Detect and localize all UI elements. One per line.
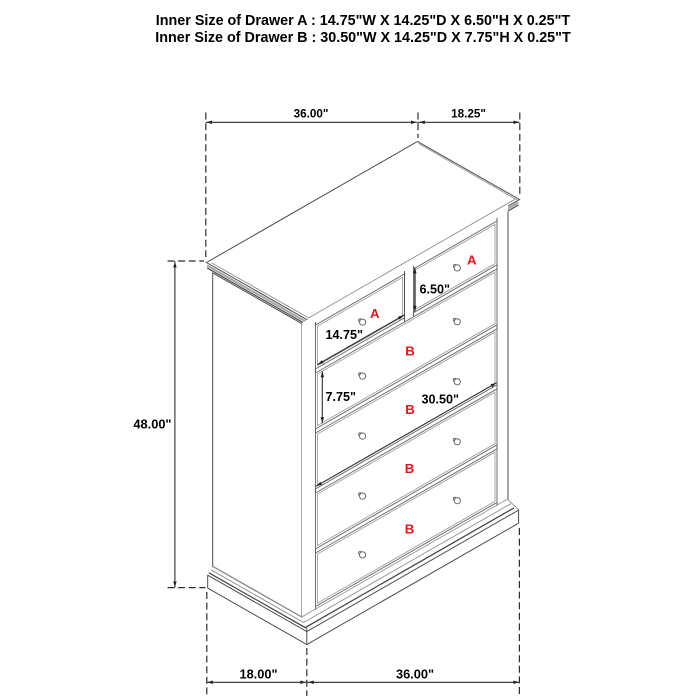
svg-text:B: B bbox=[405, 521, 415, 536]
svg-text:48.00": 48.00" bbox=[133, 416, 171, 431]
svg-text:B: B bbox=[405, 461, 415, 476]
svg-text:6.50": 6.50" bbox=[420, 283, 451, 297]
svg-text:36.00": 36.00" bbox=[294, 108, 329, 121]
svg-text:A: A bbox=[370, 306, 380, 321]
svg-text:Inner Size of Drawer B : 30.50: Inner Size of Drawer B : 30.50"W X 14.25… bbox=[155, 30, 571, 46]
svg-text:18.00": 18.00" bbox=[239, 666, 277, 681]
svg-text:B: B bbox=[405, 344, 415, 359]
svg-text:Inner Size of Drawer A : 14.75: Inner Size of Drawer A : 14.75"W X 14.25… bbox=[156, 13, 571, 29]
svg-text:14.75": 14.75" bbox=[326, 328, 364, 342]
svg-text:30.50": 30.50" bbox=[422, 392, 460, 406]
svg-text:B: B bbox=[405, 402, 415, 417]
svg-text:18.25": 18.25" bbox=[451, 108, 486, 121]
svg-text:A: A bbox=[467, 252, 477, 267]
svg-text:7.75": 7.75" bbox=[326, 390, 357, 404]
svg-text:36.00": 36.00" bbox=[396, 666, 434, 681]
